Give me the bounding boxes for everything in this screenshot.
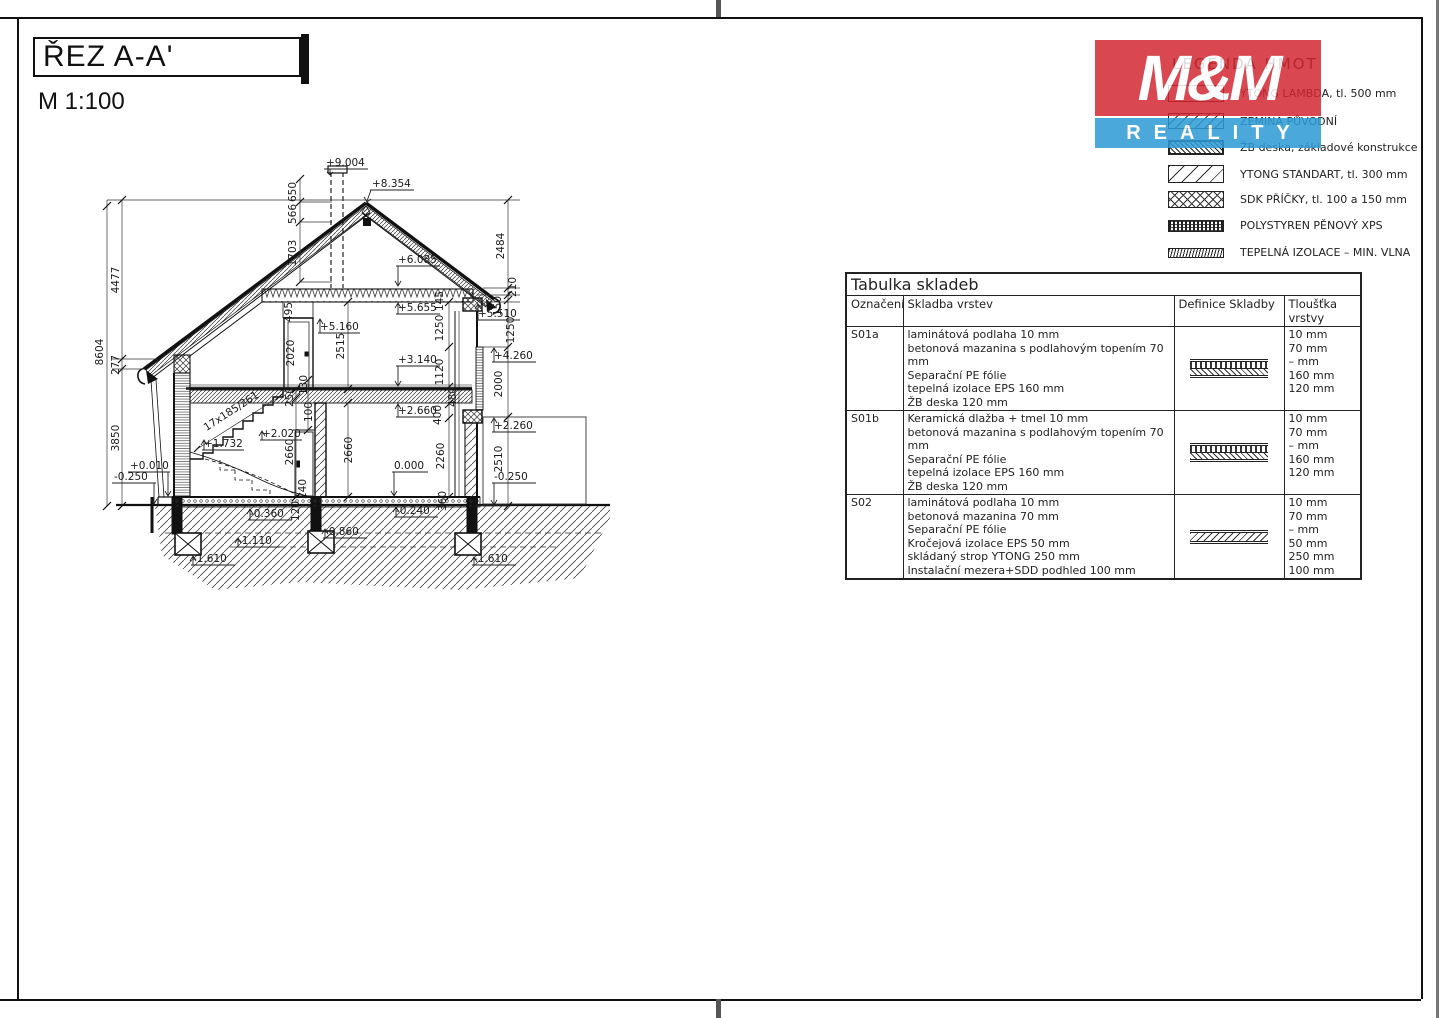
- dim-label: 120: [290, 501, 302, 521]
- ridge-purlin: [363, 218, 371, 226]
- fold-mark-top: [716, 0, 721, 17]
- page-edge: [1436, 0, 1439, 1018]
- title-accent-bar: [301, 34, 309, 84]
- drawing-scale: M 1:100: [38, 88, 125, 116]
- legend-swatch-ytong-standart: [1168, 165, 1224, 183]
- dim-label: 400: [432, 405, 444, 425]
- left-exterior-wall: [174, 373, 190, 497]
- table-title: Tabulka skladeb: [846, 273, 1361, 296]
- legend-label: TEPELNÁ IZOLACE – MIN. VLNA: [1240, 246, 1410, 259]
- level-label: +2.260: [494, 420, 533, 432]
- dim-label: 2660: [343, 437, 355, 464]
- table-row: S01a laminátová podlaha 10 mm betonová m…: [846, 327, 1361, 411]
- row-thicknesses: 10 mm 70 mm – mm 160 mm 120 mm: [1284, 327, 1361, 411]
- center-pier: [315, 403, 326, 497]
- legend-item: POLYSTYREN PĚNOVÝ XPS: [1168, 219, 1383, 232]
- level-label: -1.110: [238, 535, 272, 547]
- row-id: S01a: [846, 327, 903, 411]
- row-id: S02: [846, 495, 903, 580]
- interfloor-slab: [186, 385, 472, 403]
- dim-label: 360: [437, 491, 449, 511]
- row-definition-graphic: [1174, 411, 1284, 495]
- legend-item: TEPELNÁ IZOLACE – MIN. VLNA: [1168, 246, 1410, 259]
- right-lower-wall: [465, 423, 477, 497]
- row-thicknesses: 10 mm 70 mm – mm 160 mm 120 mm: [1284, 411, 1361, 495]
- drawing-title-box: ŘEZ A-A': [33, 37, 301, 77]
- level-label: +5.160: [320, 321, 359, 333]
- gutter-left: [138, 368, 146, 384]
- dim-label: 277: [110, 355, 122, 375]
- legend-label: POLYSTYREN PĚNOVÝ XPS: [1240, 219, 1383, 232]
- dim-label: 145: [434, 291, 446, 311]
- downspout: [151, 380, 164, 497]
- dim-label: 566: [287, 204, 299, 224]
- dim-label: 2484: [495, 232, 507, 259]
- level-label: +4.260: [494, 350, 533, 362]
- page-border-right: [1421, 17, 1423, 999]
- legend-label: SDK PŘÍČKY, tl. 100 a 150 mm: [1240, 193, 1407, 206]
- dim-label: 3850: [110, 425, 122, 452]
- dim-label: 210: [507, 277, 519, 297]
- dim-label: 8604: [94, 338, 106, 365]
- fold-mark-bottom: [716, 999, 721, 1018]
- page-border-bottom: [0, 999, 1421, 1001]
- right-ring-beam-mid: [463, 410, 482, 423]
- dim-label: 2660: [284, 439, 296, 466]
- dim-label: 1250: [505, 317, 517, 344]
- legend-label: YTONG STANDART, tl. 300 mm: [1240, 168, 1408, 181]
- section-drawing: +9.004 +8.354 +6.085 +5.655 +5.510 +5.16…: [80, 150, 640, 600]
- level-label: -1.610: [474, 553, 508, 565]
- table-row: S02 laminátová podlaha 10 mm betonová ma…: [846, 495, 1361, 580]
- table-row: S01b Keramická dlažba + tmel 10 mm beton…: [846, 411, 1361, 495]
- dim-label: 495: [283, 302, 295, 322]
- dim-label: 4477: [110, 267, 122, 294]
- ground-floor-slab: [158, 497, 480, 507]
- level-label: 0.000: [394, 460, 424, 472]
- legend-swatch-mineral-wool: [1168, 248, 1224, 258]
- legend-swatch-xps: [1168, 220, 1224, 232]
- dim-label: 2515: [335, 333, 347, 360]
- dim-label: 1120: [434, 359, 446, 386]
- legend-swatch-sdk: [1168, 191, 1224, 208]
- dim-label: 1703: [287, 240, 299, 267]
- legend-item: SDK PŘÍČKY, tl. 100 a 150 mm: [1168, 191, 1407, 208]
- level-label: +3.140: [398, 354, 437, 366]
- row-definition-graphic: [1174, 327, 1284, 411]
- dim-label: 240: [297, 479, 309, 499]
- level-label: -0.860: [325, 526, 359, 538]
- level-label: +9.004: [326, 157, 365, 169]
- row-id: S01b: [846, 411, 903, 495]
- col-header-tloustka: Tloušťka vrstvy: [1284, 296, 1361, 327]
- level-label: -1.610: [193, 553, 227, 565]
- right-xps-strip: [476, 347, 483, 410]
- dim-label: 100: [303, 402, 315, 422]
- row-layers: laminátová podlaha 10 mm betonová mazani…: [903, 327, 1174, 411]
- level-label: -0.250: [114, 471, 148, 483]
- left-ring-beam: [174, 355, 190, 373]
- dim-label: 2510: [493, 446, 505, 473]
- composition-table: Tabulka skladeb Označení Skladba vrstev …: [845, 272, 1362, 580]
- dim-label: 480: [447, 387, 459, 407]
- logo-mm: M&M: [1095, 40, 1321, 116]
- level-label: -0.360: [250, 508, 284, 520]
- level-label: +5.655: [398, 302, 437, 314]
- level-label: -0.240: [396, 505, 430, 517]
- dim-label: 1250: [434, 315, 446, 342]
- page-border-top: [0, 17, 1421, 19]
- logo-mm-text: M&M: [1138, 41, 1279, 115]
- row-layers: laminátová podlaha 10 mm betonová mazani…: [903, 495, 1174, 580]
- dim-label: 150: [492, 296, 504, 316]
- drawing-title: ŘEZ A-A': [43, 40, 173, 74]
- col-header-oznaceni: Označení: [846, 296, 903, 327]
- dim-label: 250: [284, 387, 296, 407]
- dim-label: 2260: [435, 443, 447, 470]
- dim-label: 2020: [285, 340, 297, 367]
- col-header-definice: Definice Skladby: [1174, 296, 1284, 327]
- level-label: +6.085: [398, 254, 437, 266]
- level-label: +8.354: [372, 178, 411, 190]
- level-label: +1.732: [204, 438, 243, 450]
- logo-reality: REALITY: [1095, 118, 1321, 148]
- row-thicknesses: 10 mm 70 mm – mm 50 mm 250 mm 100 mm: [1284, 495, 1361, 580]
- dim-label: 130: [298, 375, 310, 395]
- col-header-skladba: Skladba vrstev: [903, 296, 1174, 327]
- row-layers: Keramická dlažba + tmel 10 mm betonová m…: [903, 411, 1174, 495]
- logo-reality-text: REALITY: [1113, 122, 1303, 145]
- page-border-left: [17, 17, 19, 999]
- dim-label: 2000: [493, 371, 505, 398]
- level-label: +2.020: [262, 428, 301, 440]
- legend-item: YTONG STANDART, tl. 300 mm: [1168, 165, 1408, 183]
- dim-label: 650: [287, 182, 299, 202]
- row-definition-graphic: [1174, 495, 1284, 580]
